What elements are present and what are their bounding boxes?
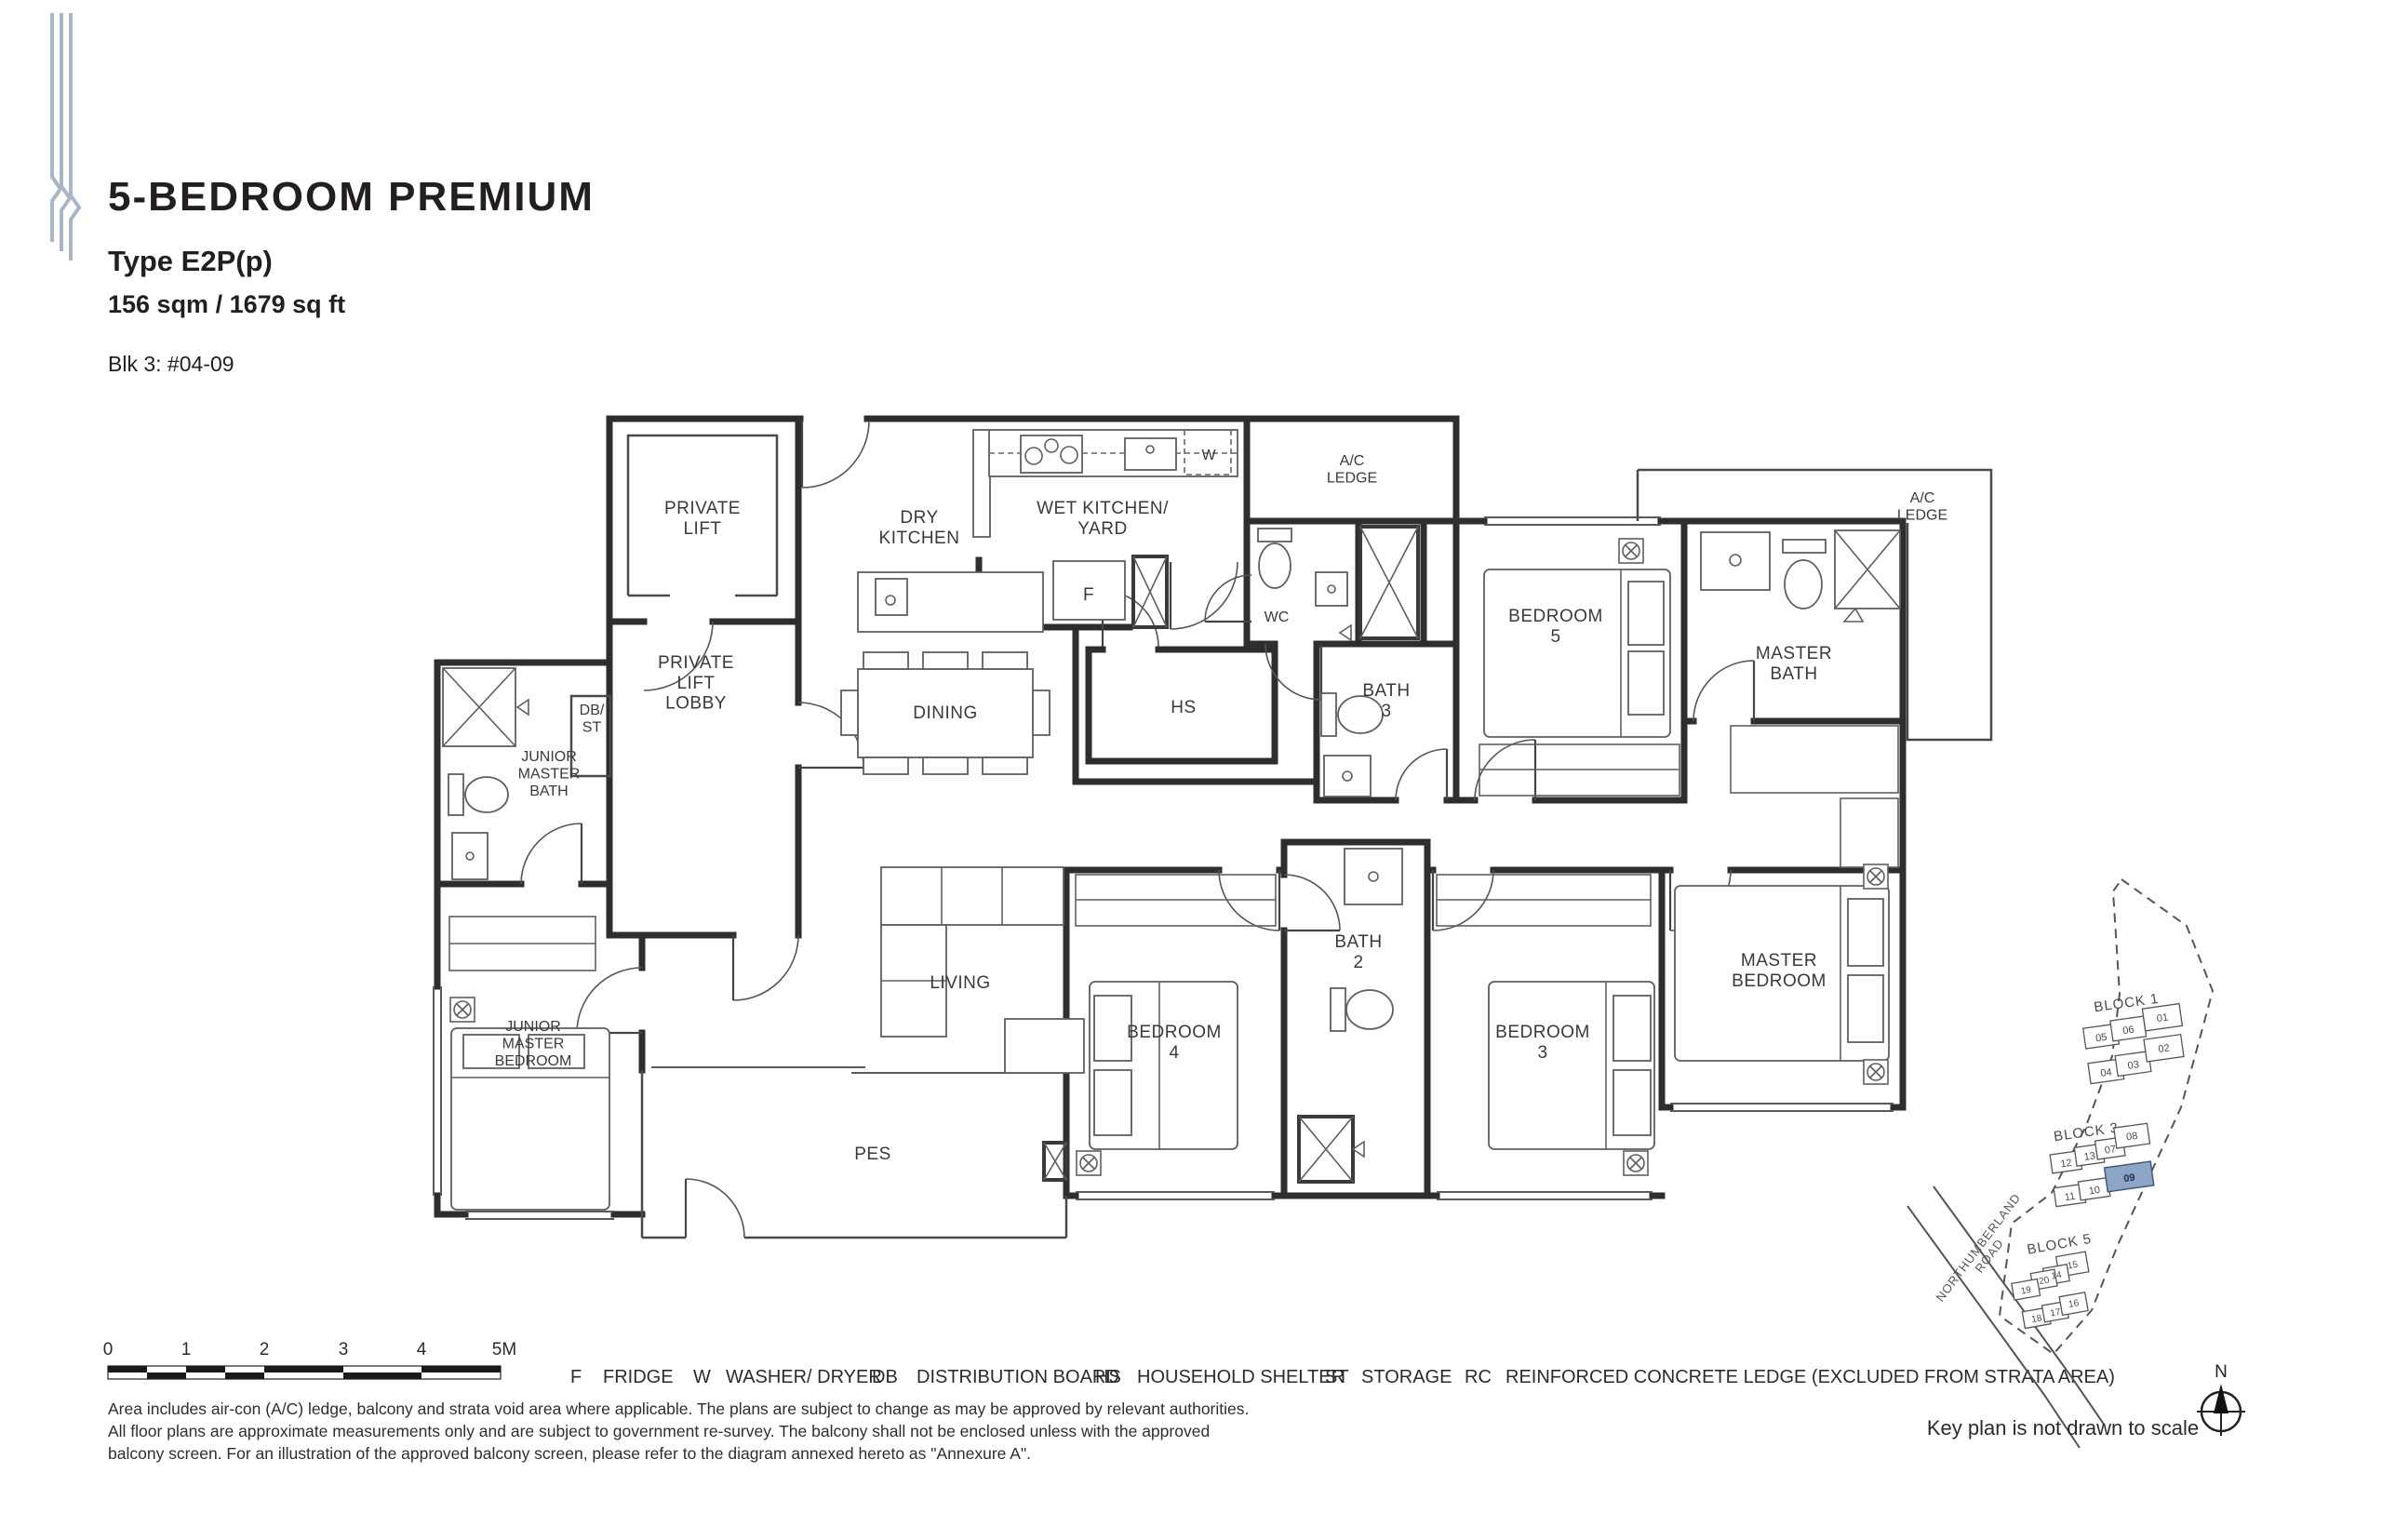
disclaimer-line: balcony screen. For an illustration of t…	[108, 1444, 1031, 1463]
fixture-label-fridge: F	[1083, 585, 1094, 605]
room-label-private-lift: PRIVATELIFT	[664, 499, 741, 539]
toilet-wc	[1259, 543, 1291, 588]
road-lines	[1907, 1186, 2105, 1448]
sofa-back	[881, 867, 1064, 925]
keyplan-unit: 04	[2100, 1066, 2113, 1079]
room-label-lift-lobby: PRIVATELIFTLOBBY	[658, 653, 734, 714]
legend-label: FRIDGE	[603, 1367, 674, 1387]
room-label-master-bath: MASTERBATH	[1756, 644, 1832, 684]
room-label-living: LIVING	[930, 973, 990, 993]
legend-abbr: HS	[1095, 1367, 1121, 1387]
room-label-ac-ledge-right: A/CLEDGE	[1897, 490, 1947, 523]
legend: F FRIDGE W WASHER/ DRYER DB DISTRIBUTION…	[570, 1367, 2115, 1387]
room-label-dry-kitchen: DRYKITCHEN	[879, 508, 960, 548]
toilet-bath3	[1338, 696, 1383, 733]
toilet-junior	[465, 777, 508, 812]
unit-type: Type E2P(p)	[108, 245, 273, 277]
legend-label: WASHER/ DRYER	[726, 1367, 882, 1387]
keyplan-block5: BLOCK 5 15 14 20 19 18 17 16	[2005, 1231, 2106, 1330]
disclaimer: Area includes air-con (A/C) ledge, balco…	[108, 1399, 1249, 1463]
legend-label: HOUSEHOLD SHELTER	[1137, 1367, 1345, 1387]
wardrobe-master-walk	[1731, 726, 1898, 793]
key-plan: NORTHUMBERLANDROAD BLOCK 1 05 06 01 04 0…	[1907, 879, 2245, 1448]
keyplan-note: Key plan is not drawn to scale	[1927, 1416, 2199, 1440]
keyplan-unit: 07	[2104, 1144, 2117, 1157]
keyplan-unit: 01	[2156, 1011, 2169, 1024]
living-furniture	[881, 867, 1084, 1073]
shaft-vent-arrow	[1340, 625, 1351, 640]
room-label-db-st: DB/ST	[580, 703, 605, 735]
keyplan-unit: 11	[2064, 1191, 2076, 1203]
room-label-hs: HS	[1171, 698, 1196, 717]
room-label-pes: PES	[854, 1145, 891, 1164]
unit-area: 156 sqm / 1679 sq ft	[108, 290, 345, 318]
scale-tick: 4	[417, 1340, 427, 1359]
scale-tick: 3	[339, 1340, 349, 1359]
scale-tick: 5M	[492, 1340, 516, 1359]
fan-icon	[1864, 864, 1888, 889]
scale-tick: 1	[181, 1340, 192, 1359]
keyplan-unit: 06	[2122, 1024, 2135, 1038]
room-label-ac-ledge-top: A/CLEDGE	[1327, 453, 1377, 486]
legend-abbr: DB	[872, 1367, 898, 1387]
keyplan-unit: 03	[2127, 1059, 2140, 1072]
legend-label: STORAGE	[1361, 1367, 1452, 1387]
fan-icon	[450, 998, 475, 1022]
legend-abbr: W	[693, 1367, 711, 1387]
scale-tick: 2	[260, 1340, 270, 1359]
tall-cabinet	[973, 430, 990, 537]
brand-logo-icon	[52, 13, 79, 261]
room-label-junior-bath: JUNIORMASTERBATH	[518, 749, 581, 799]
fixture-label-washer: W	[1201, 448, 1216, 463]
keyplan-unit: 02	[2158, 1043, 2171, 1056]
wardrobe-master-side	[1840, 798, 1898, 867]
keyplan-unit: 05	[2094, 1032, 2108, 1045]
keyplan-unit-highlighted: 09	[2123, 1172, 2136, 1185]
fan-icon	[1624, 1151, 1648, 1175]
coffee-table	[1005, 1019, 1084, 1073]
floor-plan: PRIVATELIFT DRYKITCHEN WET KITCHEN/YARD …	[434, 419, 1991, 1238]
room-label-wet-kitchen: WET KITCHEN/YARD	[1037, 499, 1169, 539]
floorplan-page: 5-BEDROOM PREMIUM Type E2P(p) 156 sqm / …	[0, 0, 2382, 1540]
toilet-master	[1785, 560, 1822, 609]
fan-icon	[1077, 1151, 1101, 1175]
fan-icon	[1619, 539, 1643, 563]
room-label-dining: DINING	[913, 703, 978, 723]
room-label-master-bedroom: MASTERBEDROOM	[1732, 951, 1827, 991]
compass-north-label: N	[2215, 1362, 2228, 1382]
kitchen-sink	[1125, 438, 1176, 470]
keyplan-block3: BLOCK 3 12 13 07 08 11 10 09	[2045, 1116, 2156, 1206]
island-sink	[876, 579, 907, 615]
keyplan-unit: 08	[2125, 1131, 2138, 1144]
scale-bar: 0 1 2 3 4 5M	[103, 1340, 516, 1379]
legend-label: REINFORCED CONCRETE LEDGE (EXCLUDED FROM…	[1505, 1367, 2115, 1387]
room-label-wc: WC	[1265, 609, 1290, 625]
fan-icon	[1864, 1060, 1888, 1084]
keyplan-unit: 12	[2060, 1158, 2073, 1171]
keyplan-unit: 10	[2088, 1185, 2101, 1198]
disclaimer-line: Area includes air-con (A/C) ledge, balco…	[108, 1399, 1249, 1418]
legend-abbr: RC	[1465, 1367, 1492, 1387]
floorplan-canvas: 5-BEDROOM PREMIUM Type E2P(p) 156 sqm / …	[0, 0, 2382, 1540]
compass-icon: N	[2197, 1362, 2245, 1436]
disclaimer-line: All floor plans are approximate measurem…	[108, 1422, 1210, 1440]
legend-abbr: ST	[1325, 1367, 1349, 1387]
room-label-bath2: BATH2	[1334, 932, 1382, 972]
toilet-bath2	[1346, 990, 1393, 1029]
keyplan-block1: BLOCK 1 05 06 01 04 03 02	[2080, 988, 2188, 1084]
legend-label: DISTRIBUTION BOARD	[917, 1367, 1119, 1387]
unit-number: Blk 3: #04-09	[108, 352, 234, 376]
room-label-junior-bedroom: JUNIORMASTERBEDROOM	[495, 1019, 572, 1069]
cooktop	[1021, 435, 1082, 473]
page-title: 5-BEDROOM PREMIUM	[108, 174, 595, 220]
legend-abbr: F	[570, 1367, 582, 1387]
keyplan-unit: 13	[2083, 1150, 2096, 1163]
scale-tick: 0	[103, 1340, 114, 1359]
